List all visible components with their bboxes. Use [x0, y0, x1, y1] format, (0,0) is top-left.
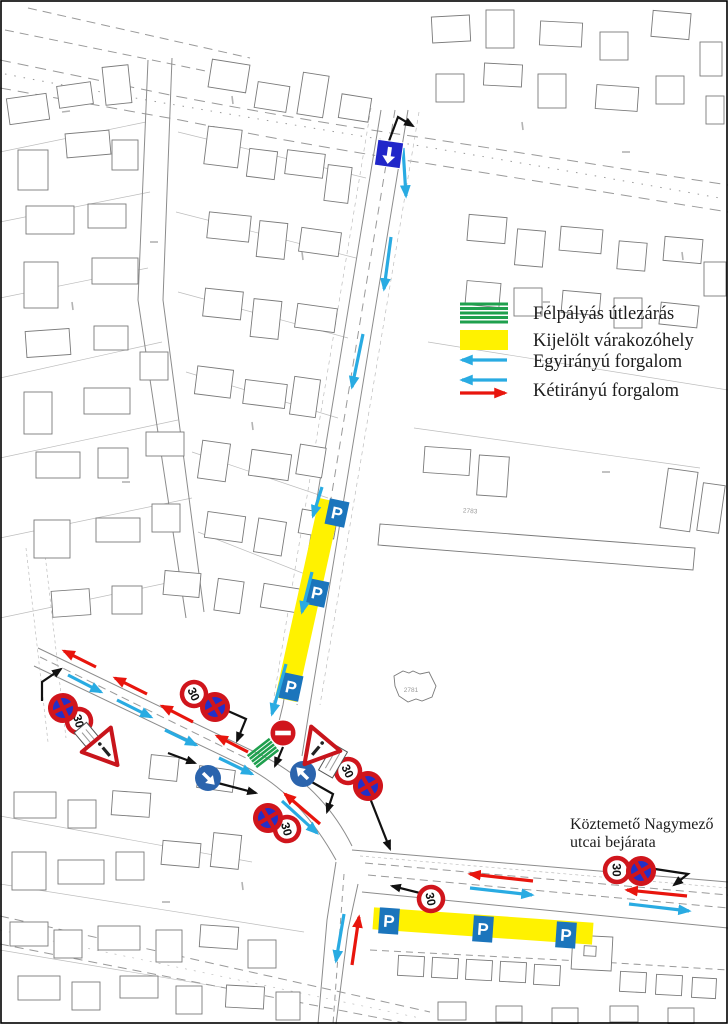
parcel-label-church: 2781 — [404, 687, 419, 694]
legend-label-two-way: Kétirányú forgalom — [533, 381, 680, 401]
annotation-line2: utcai bejárata — [570, 834, 656, 851]
cemetery-entrance-annotation: Köztemető Nagymező utcai bejárata — [570, 816, 714, 851]
legend-swatch-closure — [460, 304, 508, 322]
svg-text:P: P — [477, 920, 490, 940]
annotation-line1: Köztemető Nagymező — [570, 816, 714, 833]
speed-limit-30-sign: 30 — [605, 858, 629, 882]
one-way-street-sign — [374, 139, 403, 168]
parking-sign: P — [472, 915, 494, 942]
no-stopping-sign — [626, 856, 657, 887]
svg-text:P: P — [383, 912, 396, 932]
legend-label-parking: Kijelölt várakozóhely — [533, 331, 695, 351]
parking-strip-east: P P P — [373, 907, 594, 948]
long-strip-building — [378, 524, 695, 570]
traffic-plan-map: 2783 2781 P P P P P P — [0, 0, 728, 1024]
svg-text:P: P — [560, 926, 573, 946]
parking-sign: P — [555, 921, 577, 948]
legend-swatch-parking — [460, 330, 508, 350]
buildings-bottom-left — [10, 755, 300, 1020]
svg-text:30: 30 — [610, 863, 624, 877]
parcel-label-strip: 2783 — [463, 508, 478, 516]
speed-limit-30-sign: 30 — [417, 885, 445, 913]
legend-label-one-way: Egyirányú forgalom — [533, 352, 683, 372]
parking-sign: P — [378, 907, 400, 934]
legend-swatch-two-way — [460, 380, 507, 393]
closure-stripes-intersection — [248, 739, 279, 767]
buildings-bottom-right — [397, 935, 716, 1024]
no-entry-sign — [270, 720, 296, 746]
svg-text:30: 30 — [422, 891, 438, 907]
traffic-plan-canvas: 2783 2781 P P P P P P — [0, 0, 728, 1024]
legend-label-closure: Félpályás útlezárás — [533, 304, 674, 324]
